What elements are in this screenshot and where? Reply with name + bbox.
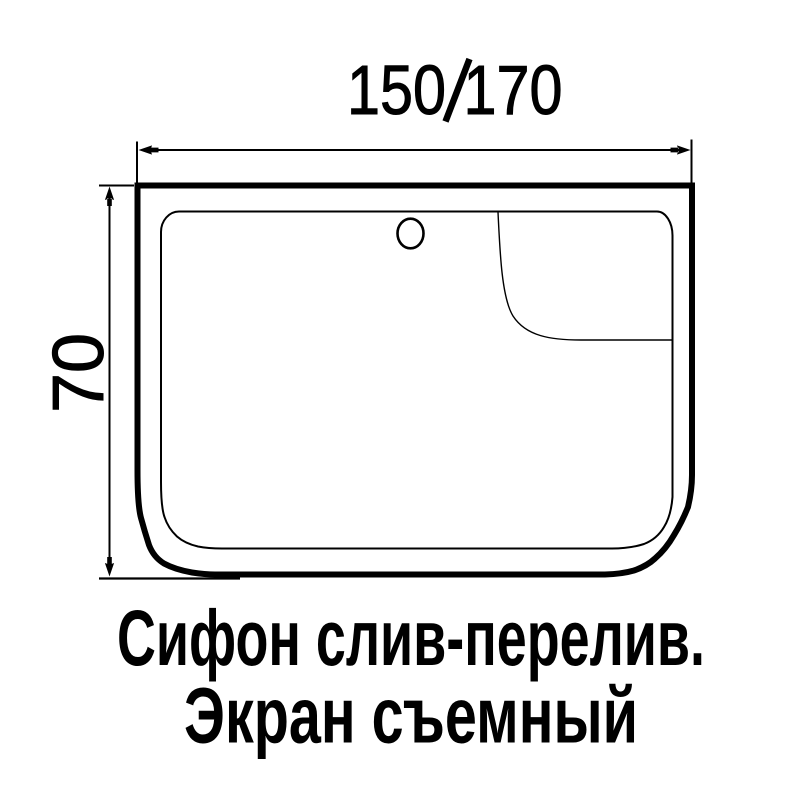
svg-text:Сифон слив-перелив.: Сифон слив-перелив. (117, 593, 705, 682)
svg-text:150: 150 (347, 51, 446, 129)
svg-text:70: 70 (39, 333, 119, 413)
svg-text:170: 170 (464, 51, 563, 129)
svg-text:Экран съемный: Экран съемный (184, 671, 638, 760)
